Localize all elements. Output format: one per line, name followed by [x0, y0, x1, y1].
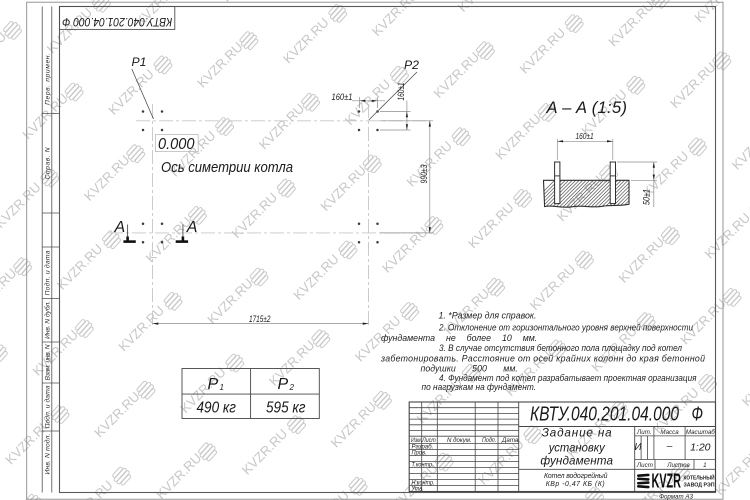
- svg-text:Котел водогрейный: Котел водогрейный: [544, 472, 608, 480]
- svg-text:595 кг: 595 кг: [266, 400, 306, 417]
- svg-text:KVZR.RU: KVZR.RU: [301, 488, 353, 500]
- svg-text:1: 1: [703, 462, 706, 469]
- svg-text:160±1: 160±1: [576, 132, 594, 141]
- svg-text:3. В случае отсутствия бетонно: 3. В случае отсутствия бетонного пола пл…: [439, 343, 682, 353]
- svg-text:Формат А3: Формат А3: [659, 493, 693, 500]
- svg-text:КВр -0,47 КБ (К): КВр -0,47 КБ (К): [546, 481, 605, 488]
- svg-text:A: A: [114, 219, 126, 236]
- svg-text:Подп. и дата: Подп. и дата: [44, 250, 52, 295]
- svg-text:установку: установку: [548, 442, 606, 455]
- svg-text:KVZR.RU: KVZR.RU: [616, 234, 668, 286]
- svg-text:KVZR.RU: KVZR.RU: [91, 389, 143, 441]
- svg-text:Ф: Ф: [692, 403, 704, 426]
- svg-text:KVZR.RU: KVZR.RU: [739, 358, 750, 410]
- svg-text:KVZR.RU: KVZR.RU: [290, 251, 342, 303]
- svg-text:490 кг: 490 кг: [197, 400, 237, 417]
- svg-text:P: P: [208, 376, 219, 393]
- svg-text:Лист: Лист: [636, 462, 653, 469]
- svg-text:P2: P2: [404, 58, 419, 72]
- svg-text:KVZR.RU: KVZR.RU: [54, 241, 106, 293]
- svg-text:забетонировать. Расстояние от: забетонировать. Расстояние от осей крайн…: [380, 354, 705, 364]
- svg-text:Инв. N дубл.: Инв. N дубл.: [44, 301, 52, 339]
- svg-text:фундамента: фундамента: [540, 454, 613, 467]
- svg-text:1: 1: [220, 383, 224, 392]
- svg-text:Дата: Дата: [501, 437, 519, 444]
- svg-text:KVZR.RU: KVZR.RU: [0, 179, 44, 231]
- svg-text:Ось симетрии котла: Ось симетрии котла: [161, 159, 293, 176]
- svg-text:Справ. N: Справ. N: [45, 147, 52, 179]
- svg-text:KVZR.RU: KVZR.RU: [0, 265, 19, 317]
- svg-text:ЗАВОД РЭП: ЗАВОД РЭП: [684, 482, 715, 488]
- svg-text:1:20: 1:20: [690, 442, 711, 454]
- svg-text:160±1: 160±1: [396, 83, 406, 101]
- svg-text:KVZR.RU: KVZR.RU: [667, 59, 719, 111]
- svg-text:KVZR.RU: KVZR.RU: [239, 426, 291, 478]
- svg-text:KVZR.RU: KVZR.RU: [404, 138, 456, 190]
- svg-text:KVZR.RU: KVZR.RU: [342, 76, 394, 128]
- svg-text:KVZR.RU: KVZR.RU: [81, 152, 133, 204]
- svg-text:KVZR.RU: KVZR.RU: [256, 101, 308, 153]
- svg-text:160±1: 160±1: [332, 92, 353, 102]
- svg-text:1. *Размер для справок.: 1. *Размер для справок.: [439, 310, 537, 320]
- svg-text:КВТУ.040.201.04.000: КВТУ.040.201.04.000: [530, 403, 679, 426]
- svg-text:KVZR.RU: KVZR.RU: [116, 303, 168, 355]
- svg-text:Лит.: Лит.: [636, 429, 652, 436]
- svg-text:KVZR.RU: KVZR.RU: [492, 111, 544, 163]
- svg-text:Подп.: Подп.: [482, 436, 496, 444]
- svg-text:KVZR.RU: KVZR.RU: [229, 190, 281, 242]
- svg-text:подушки 500 мм.: подушки 500 мм.: [421, 364, 518, 374]
- svg-text:KVZR.RU: KVZR.RU: [691, 0, 743, 25]
- svg-text:N докум.: N докум.: [447, 436, 472, 444]
- svg-text:1715±2: 1715±2: [249, 314, 271, 324]
- svg-text:KVZR.RU: KVZR.RU: [431, 49, 483, 101]
- svg-text:2: 2: [289, 383, 295, 392]
- svg-text:KVZR.RU: KVZR.RU: [318, 162, 370, 214]
- svg-text:KVZR.RU: KVZR.RU: [517, 25, 569, 77]
- svg-text:KVZR.RU: KVZR.RU: [527, 261, 579, 313]
- svg-text:Пров.: Пров.: [412, 450, 427, 457]
- svg-text:KVZR.RU: KVZR.RU: [280, 15, 332, 67]
- svg-text:2. Отклонение от горизонтально: 2. Отклонение от горизонтального уровня …: [438, 322, 693, 332]
- svg-text:KVZR.RU: KVZR.RU: [379, 224, 431, 276]
- svg-text:И: И: [634, 442, 642, 453]
- svg-text:Задание на: Задание на: [542, 427, 612, 440]
- svg-text:KVZR.RU: KVZR.RU: [30, 327, 82, 379]
- svg-text:KVZR.RU: KVZR.RU: [266, 337, 318, 389]
- svg-text:KVZR.RU: KVZR.RU: [605, 0, 657, 49]
- svg-text:Перв. примен.: Перв. примен.: [45, 53, 52, 105]
- svg-text:P1: P1: [132, 55, 147, 69]
- svg-text:P: P: [278, 376, 289, 393]
- svg-text:Масса: Масса: [660, 429, 679, 436]
- svg-text:KVZR.RU: KVZR.RU: [712, 446, 750, 498]
- svg-text:по нагрузкам на фундамент.: по нагрузкам на фундамент.: [422, 382, 537, 392]
- svg-text:Масштаб: Масштаб: [686, 429, 715, 436]
- svg-text:Т.контр.: Т.контр.: [412, 461, 434, 468]
- svg-text:KVZR.RU: KVZR.RU: [328, 399, 380, 451]
- svg-text:990±3: 990±3: [419, 164, 429, 184]
- svg-text:KVZR.RU: KVZR.RU: [729, 121, 750, 173]
- svg-text:KVZR.RU: KVZR.RU: [105, 66, 157, 118]
- svg-text:0.000: 0.000: [158, 136, 195, 153]
- svg-text:KVZR.RU: KVZR.RU: [194, 39, 246, 91]
- svg-text:–: –: [666, 441, 673, 452]
- svg-text:KVZR.RU: KVZR.RU: [369, 0, 421, 39]
- svg-text:КВТУ.040.201.04.000 Ф: КВТУ.040.201.04.000 Ф: [62, 15, 172, 27]
- svg-text:A: A: [186, 219, 198, 236]
- svg-text:A – A (1:5): A – A (1:5): [546, 99, 628, 117]
- svg-text:KVZR.RU: KVZR.RU: [702, 210, 750, 262]
- svg-text:50±1: 50±1: [642, 189, 652, 205]
- svg-text:KVZR.RU: KVZR.RU: [465, 200, 517, 252]
- svg-text:Утв.: Утв.: [411, 485, 424, 492]
- svg-text:Взам. инв. N: Взам. инв. N: [45, 344, 52, 380]
- svg-text:KVZR: KVZR: [652, 469, 682, 492]
- svg-text:Инв. N подл.: Инв. N подл.: [44, 433, 52, 474]
- svg-text:фундамента не более 10 мм.: фундамента не более 10 мм.: [381, 333, 537, 343]
- svg-text:KVZR.RU: KVZR.RU: [64, 478, 116, 500]
- svg-text:Листов: Листов: [666, 462, 690, 469]
- svg-text:Подп. и дата: Подп. и дата: [44, 385, 52, 428]
- svg-text:КОТЕЛЬНЫЙ: КОТЕЛЬНЫЙ: [684, 474, 715, 482]
